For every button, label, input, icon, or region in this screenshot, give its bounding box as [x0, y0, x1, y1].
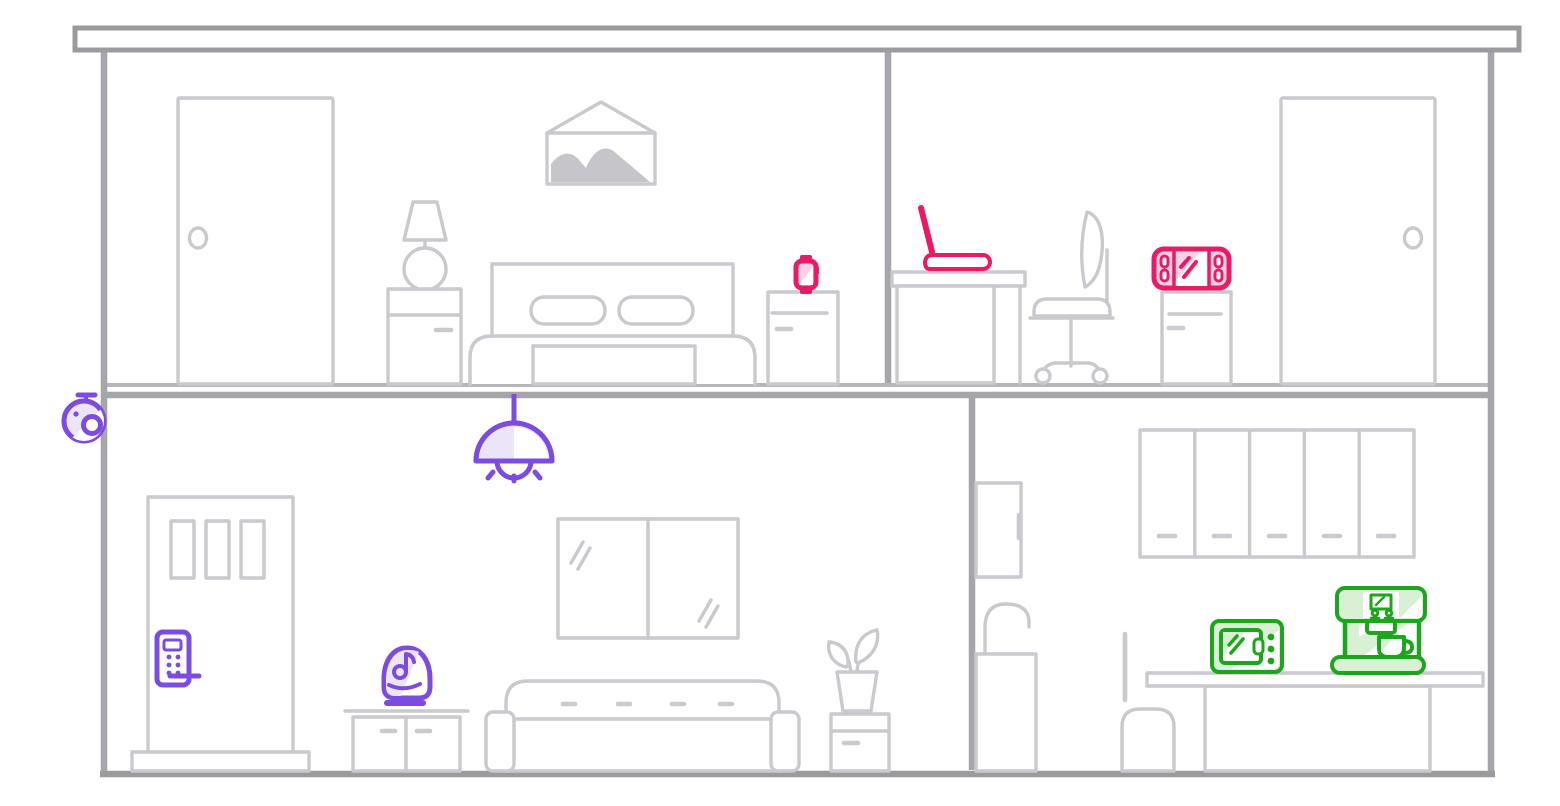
- sofa-armrest: [771, 712, 799, 771]
- footboard: [533, 346, 695, 384]
- door-pane: [241, 521, 264, 578]
- microwave-icon[interactable]: [1212, 621, 1282, 672]
- smart-home-floorplan: [0, 0, 1560, 806]
- laptop-icon[interactable]: [921, 208, 990, 269]
- game-console-icon[interactable]: [1154, 249, 1229, 288]
- door-handle: [190, 228, 207, 248]
- room-living-room: [132, 394, 889, 771]
- wall-cabinets: [1140, 430, 1414, 557]
- pillow: [531, 297, 605, 324]
- counter-base: [1205, 686, 1430, 771]
- double-bed: [470, 264, 755, 384]
- potted-plant: [829, 630, 889, 771]
- door-pane: [171, 521, 194, 578]
- chair-seat: [1034, 299, 1110, 316]
- plant-leaf: [829, 642, 848, 667]
- bedroom-door: [178, 98, 333, 384]
- room-kitchen: [976, 430, 1483, 771]
- kitchen-chair: [1122, 634, 1174, 771]
- room-bedroom: [178, 98, 838, 384]
- plant-stand: [831, 714, 889, 771]
- sideboard: [345, 711, 468, 771]
- desk: [892, 272, 1025, 383]
- office-door: [1281, 98, 1435, 384]
- office-chair: [1030, 212, 1113, 383]
- smartwatch-icon[interactable]: [796, 255, 819, 294]
- plant-leaf: [856, 630, 878, 663]
- faucet: [976, 604, 1036, 771]
- chair-wheel: [1093, 369, 1107, 383]
- table-lamp: [404, 202, 446, 290]
- sofa: [486, 681, 799, 771]
- door-handle: [1405, 228, 1422, 248]
- nightstand-left: [388, 289, 461, 384]
- chair-wheel: [1036, 369, 1050, 383]
- room-office: [892, 98, 1435, 384]
- pillow: [619, 297, 693, 324]
- boiler: [976, 654, 1036, 771]
- door-step: [132, 752, 309, 771]
- pendant-light-icon[interactable]: [476, 394, 552, 481]
- coffee-machine-icon[interactable]: [1332, 588, 1425, 673]
- plant-pot: [837, 672, 877, 711]
- office-cabinet: [1162, 292, 1231, 384]
- window: [558, 519, 738, 638]
- headboard: [492, 264, 733, 339]
- roof: [75, 28, 1519, 50]
- nightstand-right: [768, 292, 838, 384]
- sofa-armrest: [486, 712, 514, 771]
- smart-speaker-icon[interactable]: [384, 648, 430, 703]
- wall-box: [976, 483, 1021, 577]
- chair-backrest: [1082, 212, 1103, 287]
- door-pane: [206, 521, 229, 578]
- kitchen-counter: [1147, 673, 1483, 771]
- counter-top: [1147, 673, 1483, 686]
- wall-picture: [547, 102, 655, 184]
